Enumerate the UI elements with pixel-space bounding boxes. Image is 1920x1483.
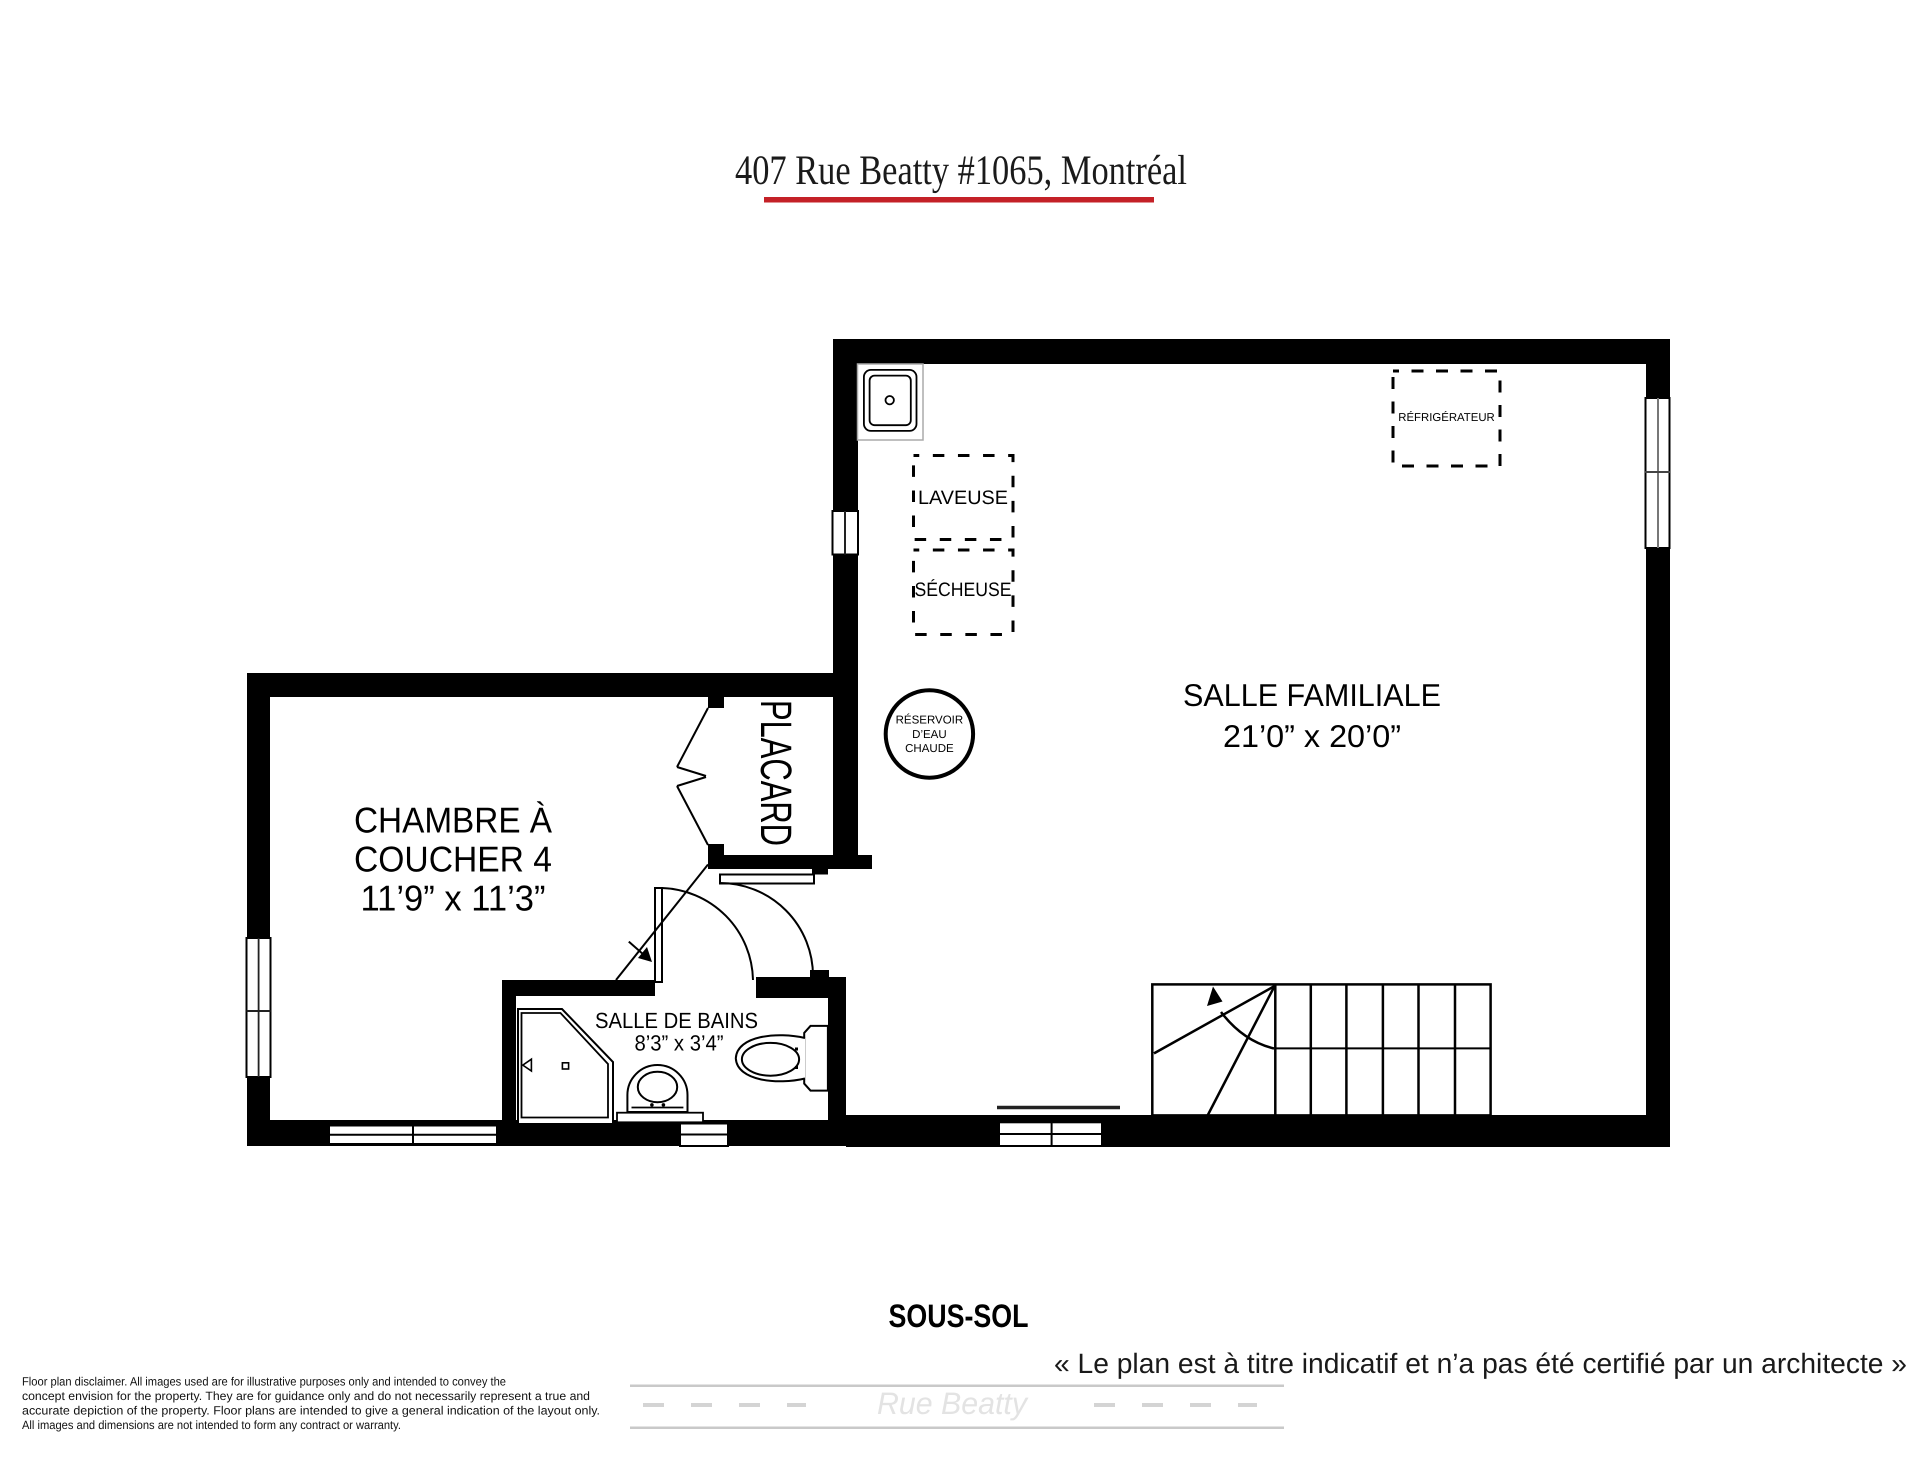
svg-text:COUCHER 4: COUCHER 4 [354,839,552,880]
svg-text:« Le plan est à titre indicati: « Le plan est à titre indicatif et n’a p… [1054,1348,1907,1379]
svg-text:407 Rue Beatty #1065, Montréal: 407 Rue Beatty #1065, Montréal [735,148,1187,194]
svg-text:SOUS-SOL: SOUS-SOL [889,1298,1029,1334]
svg-text:21’0” x 20’0”: 21’0” x 20’0” [1223,718,1401,754]
svg-text:LAVEUSE: LAVEUSE [918,487,1008,509]
svg-text:accurate depiction of the prop: accurate depiction of the property. Floo… [22,1404,600,1418]
svg-text:Rue Beatty: Rue Beatty [877,1386,1029,1421]
svg-text:CHAUDE: CHAUDE [905,743,954,755]
svg-text:SÉCHEUSE: SÉCHEUSE [915,579,1012,601]
svg-text:SALLE FAMILIALE: SALLE FAMILIALE [1183,677,1441,713]
svg-text:PLACARD: PLACARD [751,700,800,846]
svg-text:SALLE DE BAINS: SALLE DE BAINS [595,1008,758,1033]
svg-text:Floor plan disclaimer. All ima: Floor plan disclaimer. All images used a… [22,1375,506,1389]
svg-text:8’3” x 3’4”: 8’3” x 3’4” [635,1031,724,1056]
svg-text:D’EAU: D’EAU [912,729,947,741]
svg-text:concept envision for the prope: concept envision for the property. They … [22,1389,590,1403]
svg-text:RÉSERVOIR: RÉSERVOIR [896,714,964,727]
svg-text:All images and dimensions are: All images and dimensions are not intend… [22,1418,401,1432]
svg-text:11’9” x 11’3”: 11’9” x 11’3” [361,878,546,919]
svg-text:CHAMBRE À: CHAMBRE À [354,800,552,841]
svg-text:RÉFRIGÉRATEUR: RÉFRIGÉRATEUR [1398,411,1495,424]
